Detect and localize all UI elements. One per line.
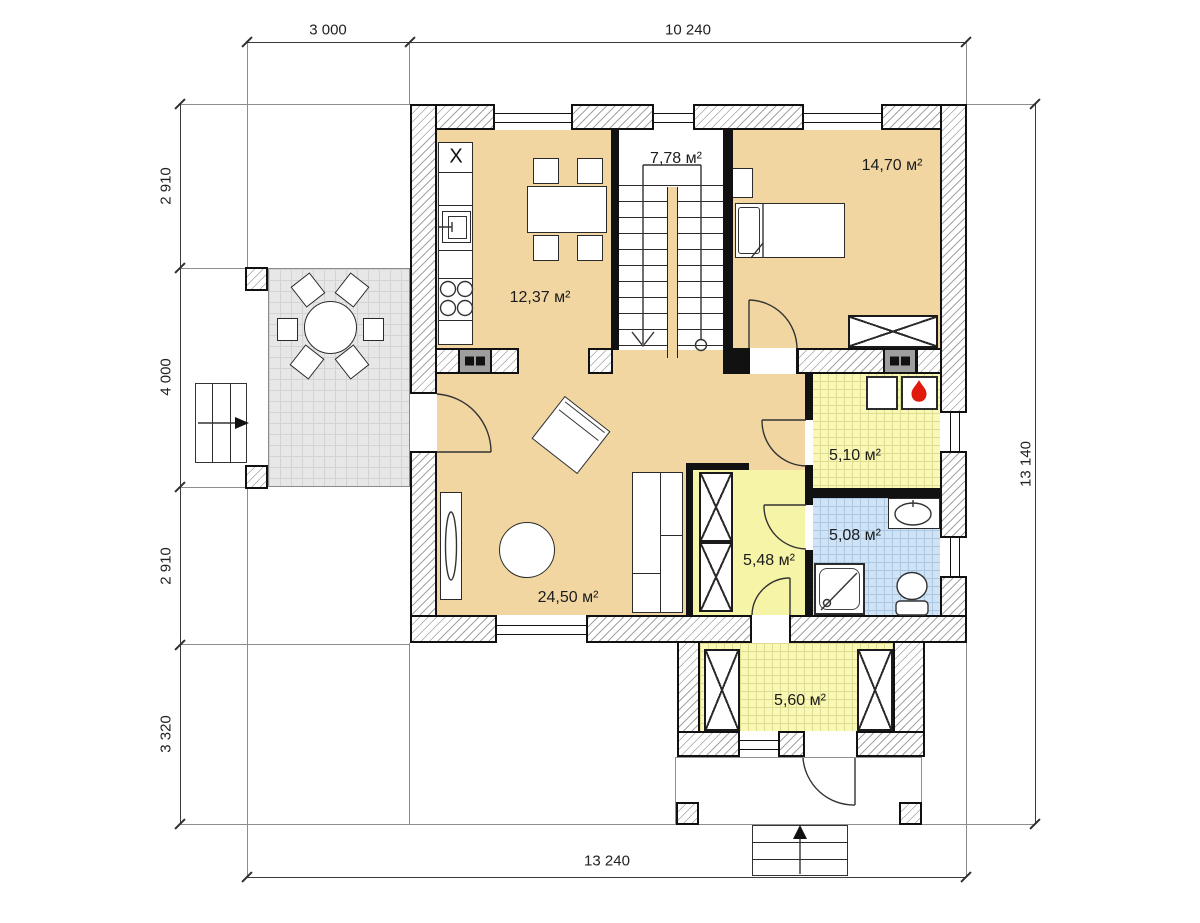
dim-label-left-2: 4 000 (158, 358, 175, 396)
wall-boiler-bath-divider (805, 488, 940, 498)
door-opening-entrance (803, 731, 858, 757)
window (493, 104, 573, 130)
terrace-floor (268, 268, 410, 487)
wall-left (410, 104, 437, 643)
flue-duct (465, 357, 474, 366)
wall-segment (435, 348, 460, 374)
window (940, 411, 967, 453)
porch-step-line (752, 842, 848, 843)
extension-line (180, 487, 246, 488)
hallway-wardrobe (699, 542, 733, 612)
corner-post (676, 802, 699, 825)
dim-label-top-left: 3 000 (309, 22, 347, 39)
extension-line (966, 104, 1035, 105)
wall-pier (723, 348, 749, 374)
window (940, 536, 967, 578)
room-area-label-stair-hall: 7,78 м² (650, 150, 702, 168)
extension-line (180, 104, 410, 105)
fridge-symbol: X (449, 146, 462, 169)
kitchen-sink-basin (448, 216, 467, 239)
terrace-step-line (212, 383, 213, 463)
wall-vestibule-bottom (677, 731, 925, 757)
dim-label-left-1: 2 910 (158, 167, 175, 205)
terrace-step-line (230, 383, 231, 463)
bedroom-wardrobe (848, 315, 938, 348)
dim-label-right: 13 140 (1018, 441, 1035, 487)
boiler-unit (901, 376, 938, 410)
window (495, 615, 588, 643)
pillow (738, 207, 760, 254)
porch-step-line (752, 859, 848, 860)
dining-chair (577, 235, 603, 261)
extension-line (409, 42, 410, 104)
room-area-label-living: 24,50 м² (538, 589, 599, 607)
wall-segment (916, 348, 942, 374)
door-opening-terrace (410, 392, 437, 453)
wall-segment (797, 348, 885, 374)
wall-hallway-left (686, 463, 693, 615)
window (802, 104, 883, 130)
counter-divider (438, 205, 473, 206)
dimension-line-top (247, 42, 966, 43)
extension-line (966, 643, 967, 877)
room-area-label-entry: 5,60 м² (774, 692, 826, 710)
entry-wardrobe (857, 649, 893, 731)
dim-label-left-3: 2 910 (158, 547, 175, 585)
hallway-wardrobe (699, 472, 733, 542)
dining-chair (577, 158, 603, 184)
extension-line (247, 42, 248, 268)
corner-post (899, 802, 922, 825)
chimney-flue (883, 348, 917, 374)
dimension-line-left (180, 104, 181, 824)
room-area-label-kitchen: 12,37 м² (510, 289, 571, 307)
extension-line (966, 42, 967, 104)
extension-line (247, 489, 248, 877)
flue-duct (901, 357, 910, 366)
dining-table (527, 186, 607, 233)
room-area-label-hallway: 5,48 м² (743, 552, 795, 570)
porch-steps (752, 825, 848, 876)
door-opening-bedroom (748, 348, 798, 374)
counter-divider (438, 250, 473, 251)
sofa-line (660, 472, 661, 613)
counter-divider (438, 278, 473, 279)
dim-label-left-4: 3 320 (158, 715, 175, 753)
terrace-chair (363, 318, 384, 341)
wall-stair-right (723, 130, 733, 350)
sofa-line (660, 535, 683, 536)
wall-stair-left (611, 130, 619, 350)
room-area-label-boiler: 5,10 м² (829, 447, 881, 465)
terrace-steps (195, 383, 247, 463)
shower (814, 563, 865, 615)
extension-line (409, 643, 410, 824)
door-opening-hallway-entry (750, 615, 791, 643)
wall-segment (588, 348, 613, 374)
dining-chair (533, 158, 559, 184)
water-heater (866, 376, 898, 410)
sofa (632, 472, 683, 613)
flue-duct (476, 357, 485, 366)
window (652, 104, 695, 130)
entry-wardrobe (704, 649, 740, 731)
wall-hallway-top (686, 463, 749, 470)
wall-segment (490, 348, 519, 374)
wall-bottom (410, 615, 967, 643)
dim-label-bottom: 13 240 (584, 853, 630, 870)
tv-stand (440, 492, 462, 600)
nightstand (731, 168, 753, 198)
floor-plan-canvas: 3 000 10 240 2 910 4 000 2 910 3 320 13 … (0, 0, 1200, 923)
corner-post (245, 267, 268, 291)
dim-label-top-right: 10 240 (665, 22, 711, 39)
chimney-flue (458, 348, 492, 374)
door-opening-boiler (805, 418, 813, 467)
dining-chair (533, 235, 559, 261)
sofa-line (632, 573, 660, 574)
room-area-label-bedroom: 14,70 м² (862, 157, 923, 175)
extension-line (180, 644, 409, 645)
dimension-line-right (1035, 104, 1036, 824)
room-area-label-bathroom: 5,08 м² (829, 527, 881, 545)
terrace-chair (277, 318, 298, 341)
porch-slab (675, 757, 922, 825)
extension-line (180, 268, 246, 269)
coffee-table (499, 522, 555, 578)
counter-divider (438, 320, 473, 321)
dimension-line-bottom (247, 877, 966, 878)
door-opening-bathroom (805, 503, 813, 552)
stair-stringer (667, 187, 678, 358)
flue-duct (890, 357, 899, 366)
corner-post (245, 465, 268, 489)
bathroom-sink-counter (888, 498, 940, 529)
window (738, 731, 780, 757)
shower-tray (819, 568, 860, 610)
